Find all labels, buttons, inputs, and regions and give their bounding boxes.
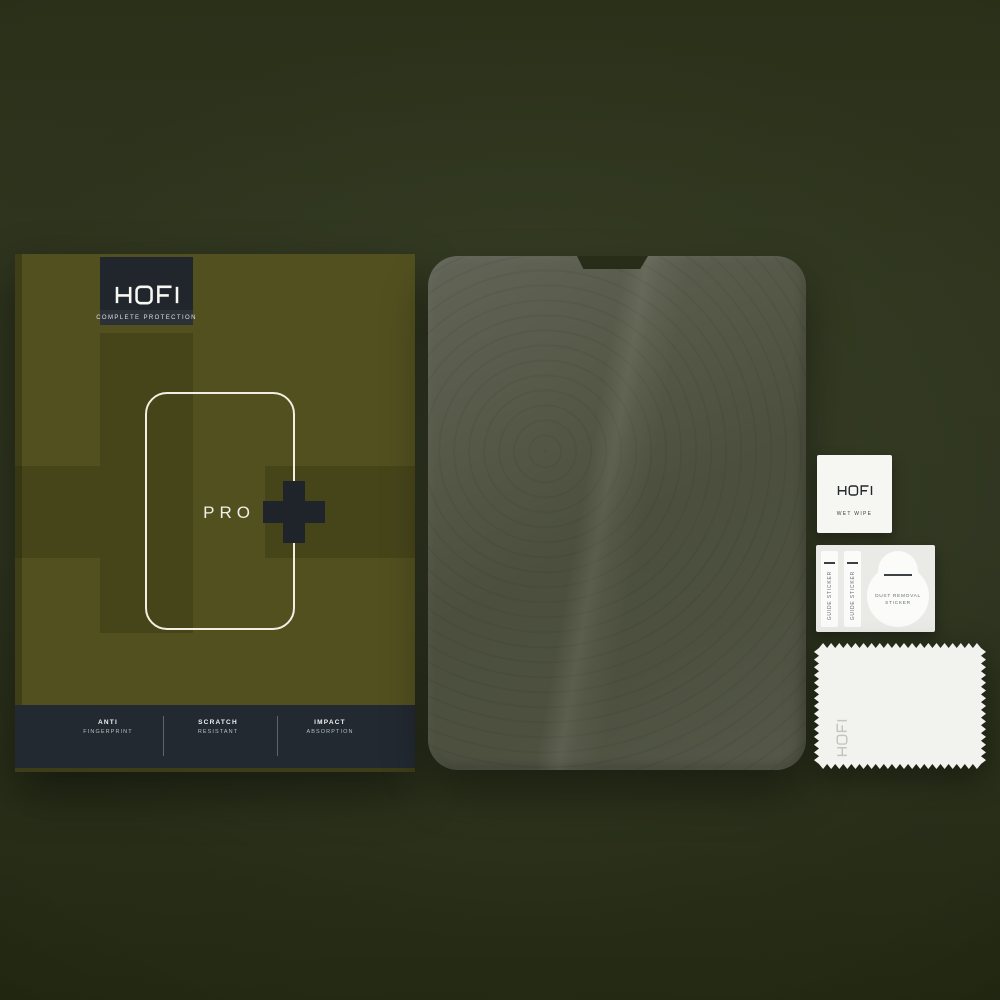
guide-sticker-left: GUIDE STICKER [821,551,838,627]
feature-impact-absorption: IMPACT ABSORPTION [275,719,385,735]
wet-wipe-sachet: HOFI WET WIPE [817,455,892,533]
sticker-mark-line [884,574,912,576]
box-pattern-cross-left-arm [15,466,100,558]
dust-label-line1: DUST REMOVAL [866,593,930,600]
feature-anti-fingerprint: ANTI FINGERPRINT [53,719,163,735]
dust-label-line2: STICKER [866,600,930,607]
sticker-sheet: GUIDE STICKER GUIDE STICKER DUST REMOVAL… [816,545,935,632]
logo-subtitle-bar: COMPLETE PROTECTION [100,310,193,325]
box-bottom-edge [15,768,415,772]
dust-removal-sticker-label: DUST REMOVAL STICKER [866,593,930,607]
plus-symbol-text: + [263,481,264,482]
hofi-logo-icon [837,485,873,496]
feature-title: ANTI [53,719,163,726]
feature-title: SCRATCH [163,719,273,726]
wet-wipe-label: WET WIPE [837,511,873,517]
guide-sticker-label: GUIDE STICKER [827,571,833,620]
wet-wipe-brand-text: HOFI [854,455,855,456]
retail-box: HOFI COMPLETE PROTECTION PRO + ANTI FING… [15,254,415,772]
product-photo-scene: HOFI COMPLETE PROTECTION PRO + ANTI FING… [0,0,1000,1000]
feature-title: IMPACT [275,719,385,726]
sticker-mark-line [824,562,835,564]
guide-sticker-label: GUIDE STICKER [850,571,856,620]
hofi-logo-icon [836,719,848,757]
camera-notch-cutout [577,256,648,269]
feature-subtitle: ABSORPTION [275,729,385,735]
cloth-brand-mark: HOFI [822,718,862,758]
plus-symbol-icon: + [263,481,325,543]
dust-removal-sticker: DUST REMOVAL STICKER [866,551,930,629]
feature-strip: ANTI FINGERPRINT SCRATCH RESISTANT IMPAC… [15,705,415,768]
hofi-logo-icon [114,285,180,305]
screen-protector-film [428,256,806,770]
box-side-edge [15,254,22,772]
product-line-name: PRO [145,503,255,523]
plus-horizontal-bar [263,501,325,523]
feature-scratch-resistant: SCRATCH RESISTANT [163,719,273,735]
guide-sticker-right: GUIDE STICKER [844,551,861,627]
logo-subtitle: COMPLETE PROTECTION [96,315,197,321]
feature-subtitle: FINGERPRINT [53,729,163,735]
brand-logo-panel: HOFI [100,257,193,310]
sticker-mark-line [847,562,858,564]
feature-subtitle: RESISTANT [163,729,273,735]
